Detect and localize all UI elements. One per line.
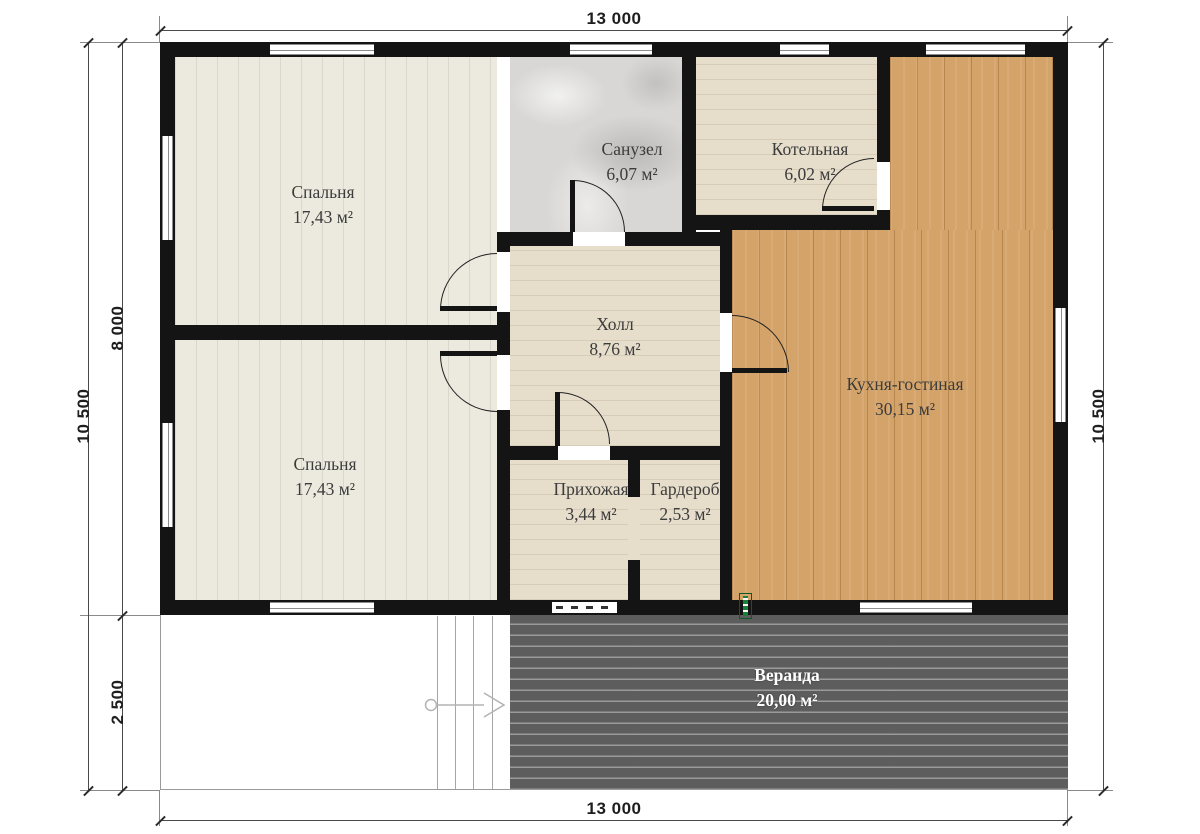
dimension-label-right-total: 10 500 bbox=[1089, 366, 1109, 466]
window-right-kitchen bbox=[1055, 305, 1066, 425]
door-opening-bedroom1 bbox=[497, 252, 510, 312]
window-top-kitchen bbox=[923, 44, 1028, 55]
room-name: Спальня bbox=[220, 452, 430, 477]
room-name: Холл bbox=[510, 312, 720, 337]
wall-boiler-bottom bbox=[682, 215, 890, 230]
room-label-wardrobe: Гардероб 2,53 м² bbox=[580, 477, 790, 526]
dimension-tick bbox=[155, 816, 166, 827]
door-leaf-bathroom bbox=[570, 180, 575, 232]
door-opening-bedroom2 bbox=[497, 355, 510, 410]
entrance-door-opening bbox=[552, 602, 617, 613]
room-name: Спальня bbox=[218, 180, 428, 205]
green-marker bbox=[739, 593, 752, 619]
room-area: 6,02 м² bbox=[705, 162, 915, 187]
wall-segment bbox=[625, 232, 732, 246]
dimension-line-bottom bbox=[160, 820, 1068, 821]
wall-segment bbox=[877, 210, 890, 230]
wall-segment bbox=[610, 446, 732, 460]
extension-line bbox=[1068, 42, 1113, 43]
wall-segment bbox=[497, 232, 573, 246]
room-label-kitchen: Кухня-гостиная 30,15 м² bbox=[800, 372, 1010, 421]
wall-segment bbox=[720, 230, 732, 313]
dimension-label-top: 13 000 bbox=[564, 9, 664, 29]
door-leaf-kitchen bbox=[732, 368, 787, 373]
door-leaf-bedroom2 bbox=[440, 351, 497, 356]
room-area: 2,53 м² bbox=[580, 502, 790, 527]
dimension-label-bottom: 13 000 bbox=[564, 799, 664, 819]
wall-bedroom-divider bbox=[175, 325, 497, 340]
window-top-boiler bbox=[777, 44, 832, 55]
dimension-label-veranda-depth: 2 500 bbox=[108, 652, 128, 752]
wall-segment bbox=[628, 560, 640, 600]
door-opening-kitchen bbox=[720, 313, 732, 372]
room-name: Гардероб bbox=[580, 477, 790, 502]
floor-plan-canvas: Спальня 17,43 м² Спальня 17,43 м² Санузе… bbox=[0, 0, 1200, 834]
window-left-bedroom2 bbox=[162, 420, 173, 530]
door-leaf-bedroom1 bbox=[440, 306, 497, 311]
window-top-bathroom bbox=[567, 44, 655, 55]
extension-line bbox=[1068, 790, 1113, 791]
entrance-threshold bbox=[556, 606, 613, 609]
door-leaf-boiler bbox=[822, 206, 874, 211]
room-area: 30,15 м² bbox=[800, 397, 1010, 422]
room-area: 17,43 м² bbox=[220, 477, 430, 502]
dimension-label-house-depth: 8 000 bbox=[108, 278, 128, 378]
room-area: 20,00 м² bbox=[682, 688, 892, 713]
window-top-bedroom1 bbox=[267, 44, 377, 55]
wall-segment bbox=[497, 446, 558, 460]
room-label-bedroom1: Спальня 17,43 м² bbox=[218, 180, 428, 229]
dimension-tick bbox=[155, 26, 166, 37]
wall-segment bbox=[497, 312, 510, 355]
window-bottom-kitchen bbox=[857, 602, 975, 613]
room-name: Веранда bbox=[682, 663, 892, 688]
entry-direction-arrow bbox=[424, 690, 509, 720]
dimension-line-top bbox=[160, 30, 1068, 31]
room-label-hall: Холл 8,76 м² bbox=[510, 312, 720, 361]
window-left-bedroom1 bbox=[162, 133, 173, 243]
room-area: 8,76 м² bbox=[510, 337, 720, 362]
room-label-bedroom2: Спальня 17,43 м² bbox=[220, 452, 430, 501]
room-label-boiler: Котельная 6,02 м² bbox=[705, 137, 915, 186]
window-bottom-bedroom2 bbox=[267, 602, 377, 613]
room-area: 17,43 м² bbox=[218, 205, 428, 230]
room-label-veranda: Веранда 20,00 м² bbox=[682, 663, 892, 712]
room-name: Кухня-гостиная bbox=[800, 372, 1010, 397]
door-opening-hall-entry bbox=[558, 446, 610, 460]
door-leaf-hall-entry bbox=[555, 392, 560, 446]
room-name: Котельная bbox=[705, 137, 915, 162]
dimension-label-left-total: 10 500 bbox=[74, 366, 94, 466]
door-opening-bathroom bbox=[573, 232, 625, 246]
